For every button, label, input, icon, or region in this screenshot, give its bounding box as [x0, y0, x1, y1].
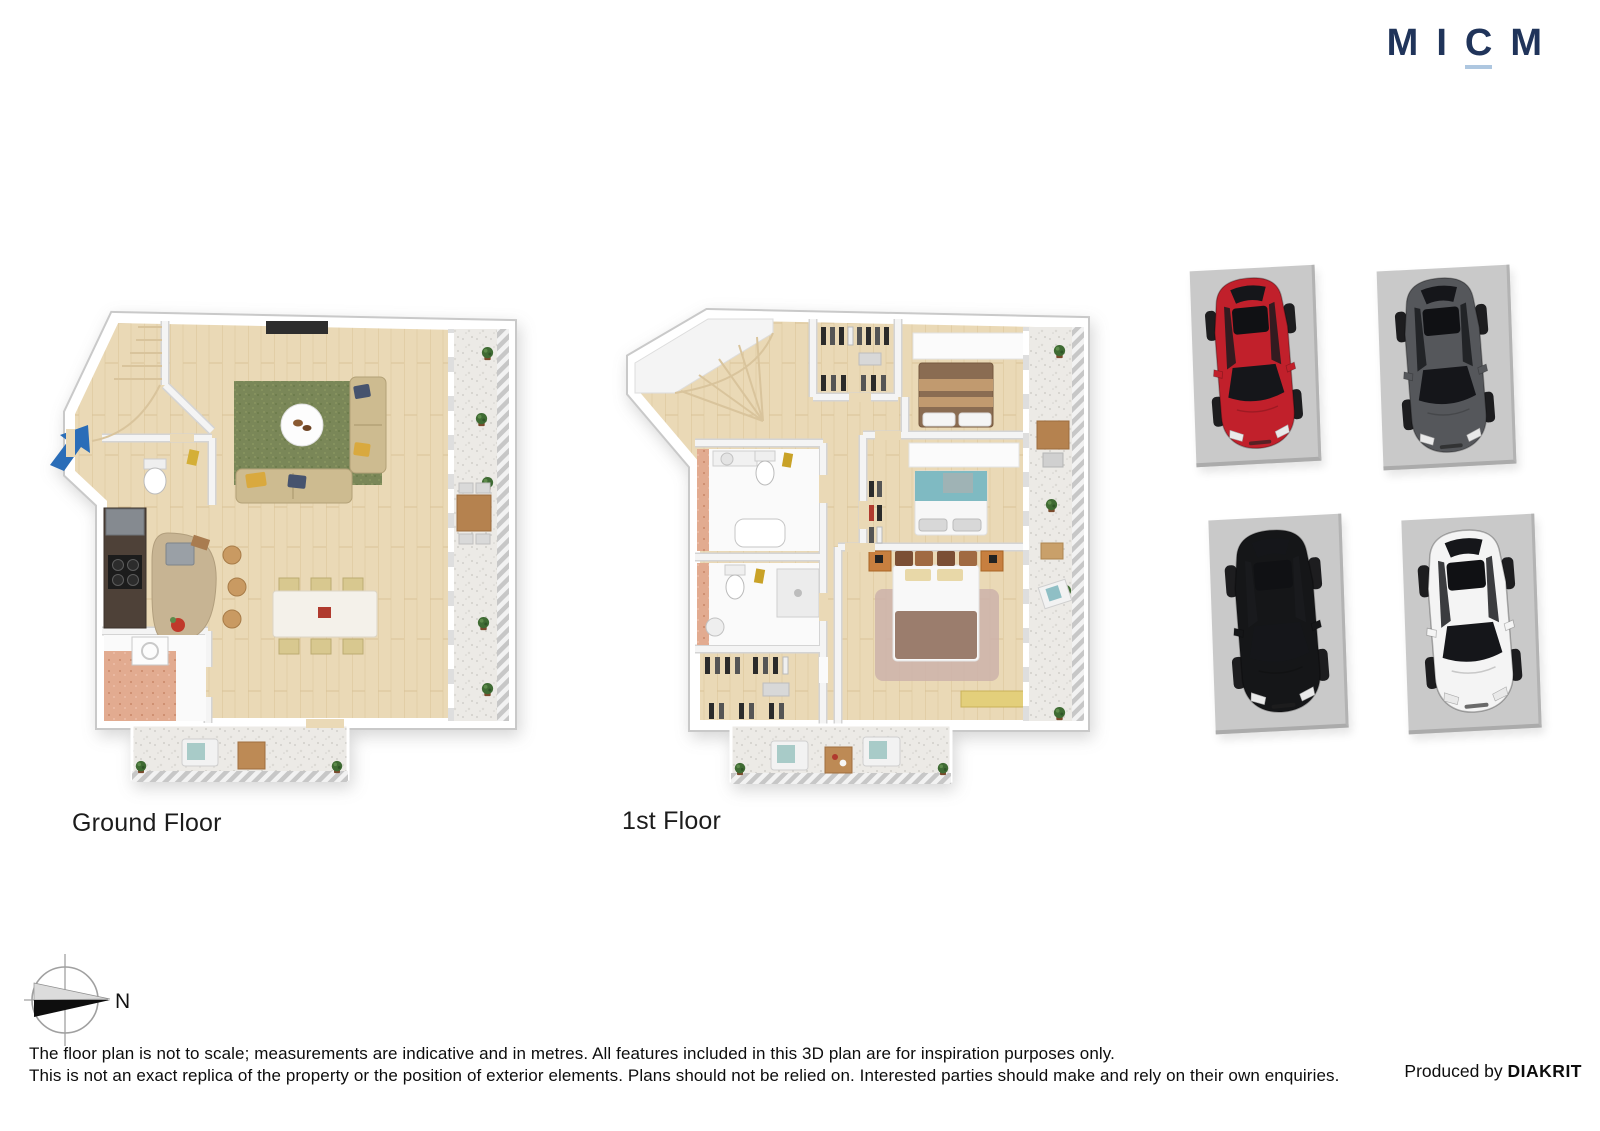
- parking-spot-1: [1190, 265, 1322, 467]
- parking-spot-3: [1208, 514, 1348, 735]
- bar-stool: [228, 578, 246, 596]
- side-table: [825, 747, 852, 773]
- white-car: [1413, 523, 1528, 722]
- bathroom-2: [697, 563, 819, 645]
- logo-letter: M: [1510, 24, 1542, 62]
- bar-stool: [223, 546, 241, 564]
- dining-area: [273, 578, 377, 654]
- logo-letter: I: [1436, 24, 1447, 62]
- bench: [961, 691, 1033, 707]
- logo-letter: M: [1387, 24, 1419, 62]
- parking-spot-2: [1377, 265, 1517, 471]
- disclaimer-line-2: This is not an exact replica of the prop…: [29, 1066, 1339, 1086]
- grey-car: [1389, 270, 1501, 461]
- micm-logo: M I C M: [1387, 24, 1542, 69]
- ground-floor-plan: [40, 293, 520, 793]
- compass-needle-light: [34, 983, 110, 1000]
- produced-by-label: Produced by: [1404, 1061, 1502, 1081]
- side-table: [238, 742, 265, 769]
- ground-bottom-balcony: [132, 725, 348, 782]
- tv: [266, 321, 328, 334]
- first-floor-label: 1st Floor: [622, 807, 721, 836]
- compass: N: [18, 942, 148, 1047]
- black-car: [1220, 523, 1335, 722]
- compass-needle-dark: [34, 1000, 110, 1017]
- ground-right-balcony: [448, 329, 509, 721]
- ground-floor-label: Ground Floor: [72, 809, 222, 838]
- outdoor-table: [457, 495, 491, 531]
- laundry: [104, 635, 206, 721]
- parking-spaces: [1165, 255, 1565, 745]
- bathtub: [735, 519, 785, 547]
- first-floor-plan: [613, 293, 1103, 793]
- floorplan-sheet: M I C M: [0, 0, 1600, 1131]
- first-bottom-balcony: [731, 725, 951, 784]
- bar-stool: [223, 610, 241, 628]
- logo-letter-underlined: C: [1465, 24, 1492, 69]
- red-car: [1199, 271, 1309, 458]
- first-right-balcony: [1023, 327, 1084, 721]
- parking-spot-4: [1401, 514, 1541, 735]
- outdoor-table: [1037, 421, 1069, 449]
- producer-name: DIAKRIT: [1508, 1061, 1582, 1081]
- produced-by: Produced by DIAKRIT: [1404, 1061, 1582, 1082]
- bathroom-1: [697, 449, 819, 551]
- disclaimer-line-1: The floor plan is not to scale; measurem…: [29, 1044, 1115, 1064]
- compass-north-label: N: [115, 990, 130, 1013]
